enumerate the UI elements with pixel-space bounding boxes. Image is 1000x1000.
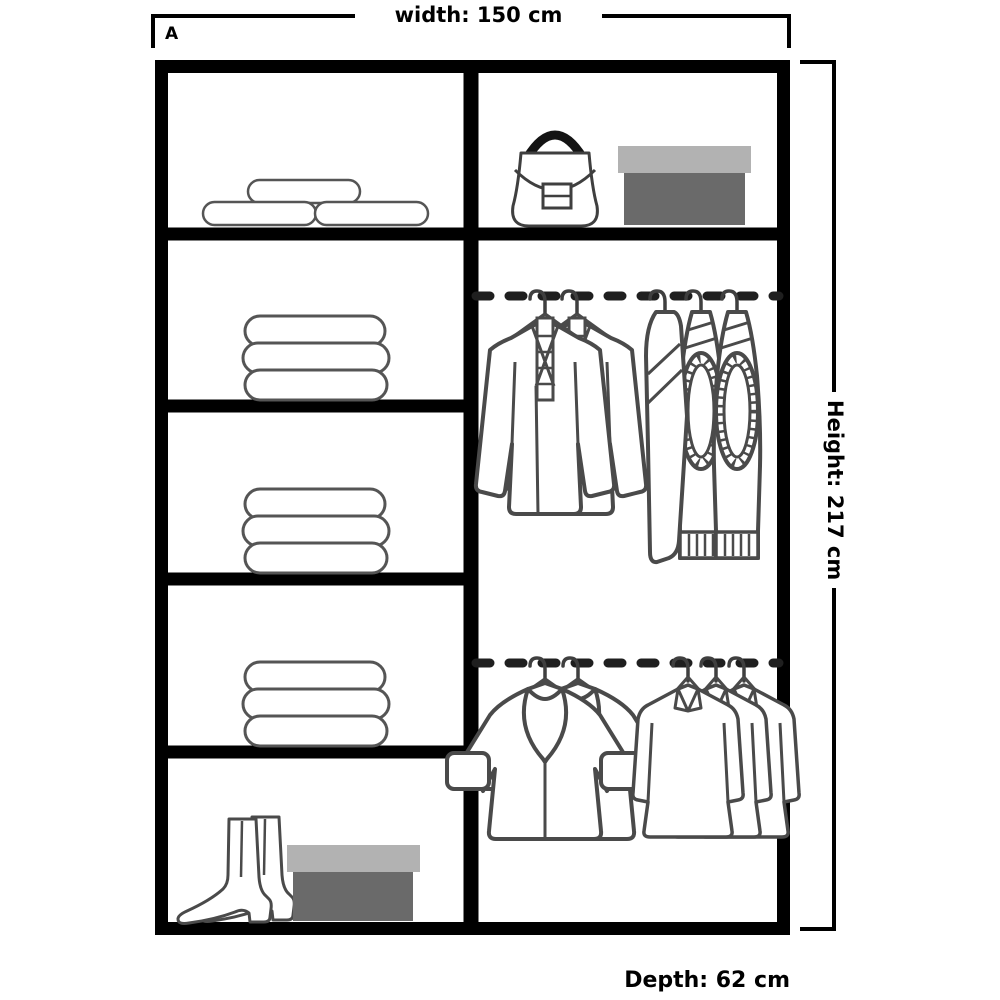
width-dimension-label: width: 150 cm xyxy=(355,1,602,29)
depth-dimension-label: Depth: 62 cm xyxy=(490,966,790,996)
folded-clothes-stack-icon xyxy=(243,316,389,400)
height-dimension-label: Height: 217 cm xyxy=(815,392,855,588)
shoe-box-icon xyxy=(287,845,420,921)
folded-clothes-stack-icon xyxy=(243,489,389,573)
hanging-trousers-icon xyxy=(646,291,760,562)
variant-label: A xyxy=(165,24,178,44)
wardrobe-diagram: width: 150 cm A Height: 217 cm Depth: 62… xyxy=(0,0,1000,1000)
folded-clothes-stack-icon xyxy=(243,662,389,746)
shoe-box-icon xyxy=(618,146,751,225)
